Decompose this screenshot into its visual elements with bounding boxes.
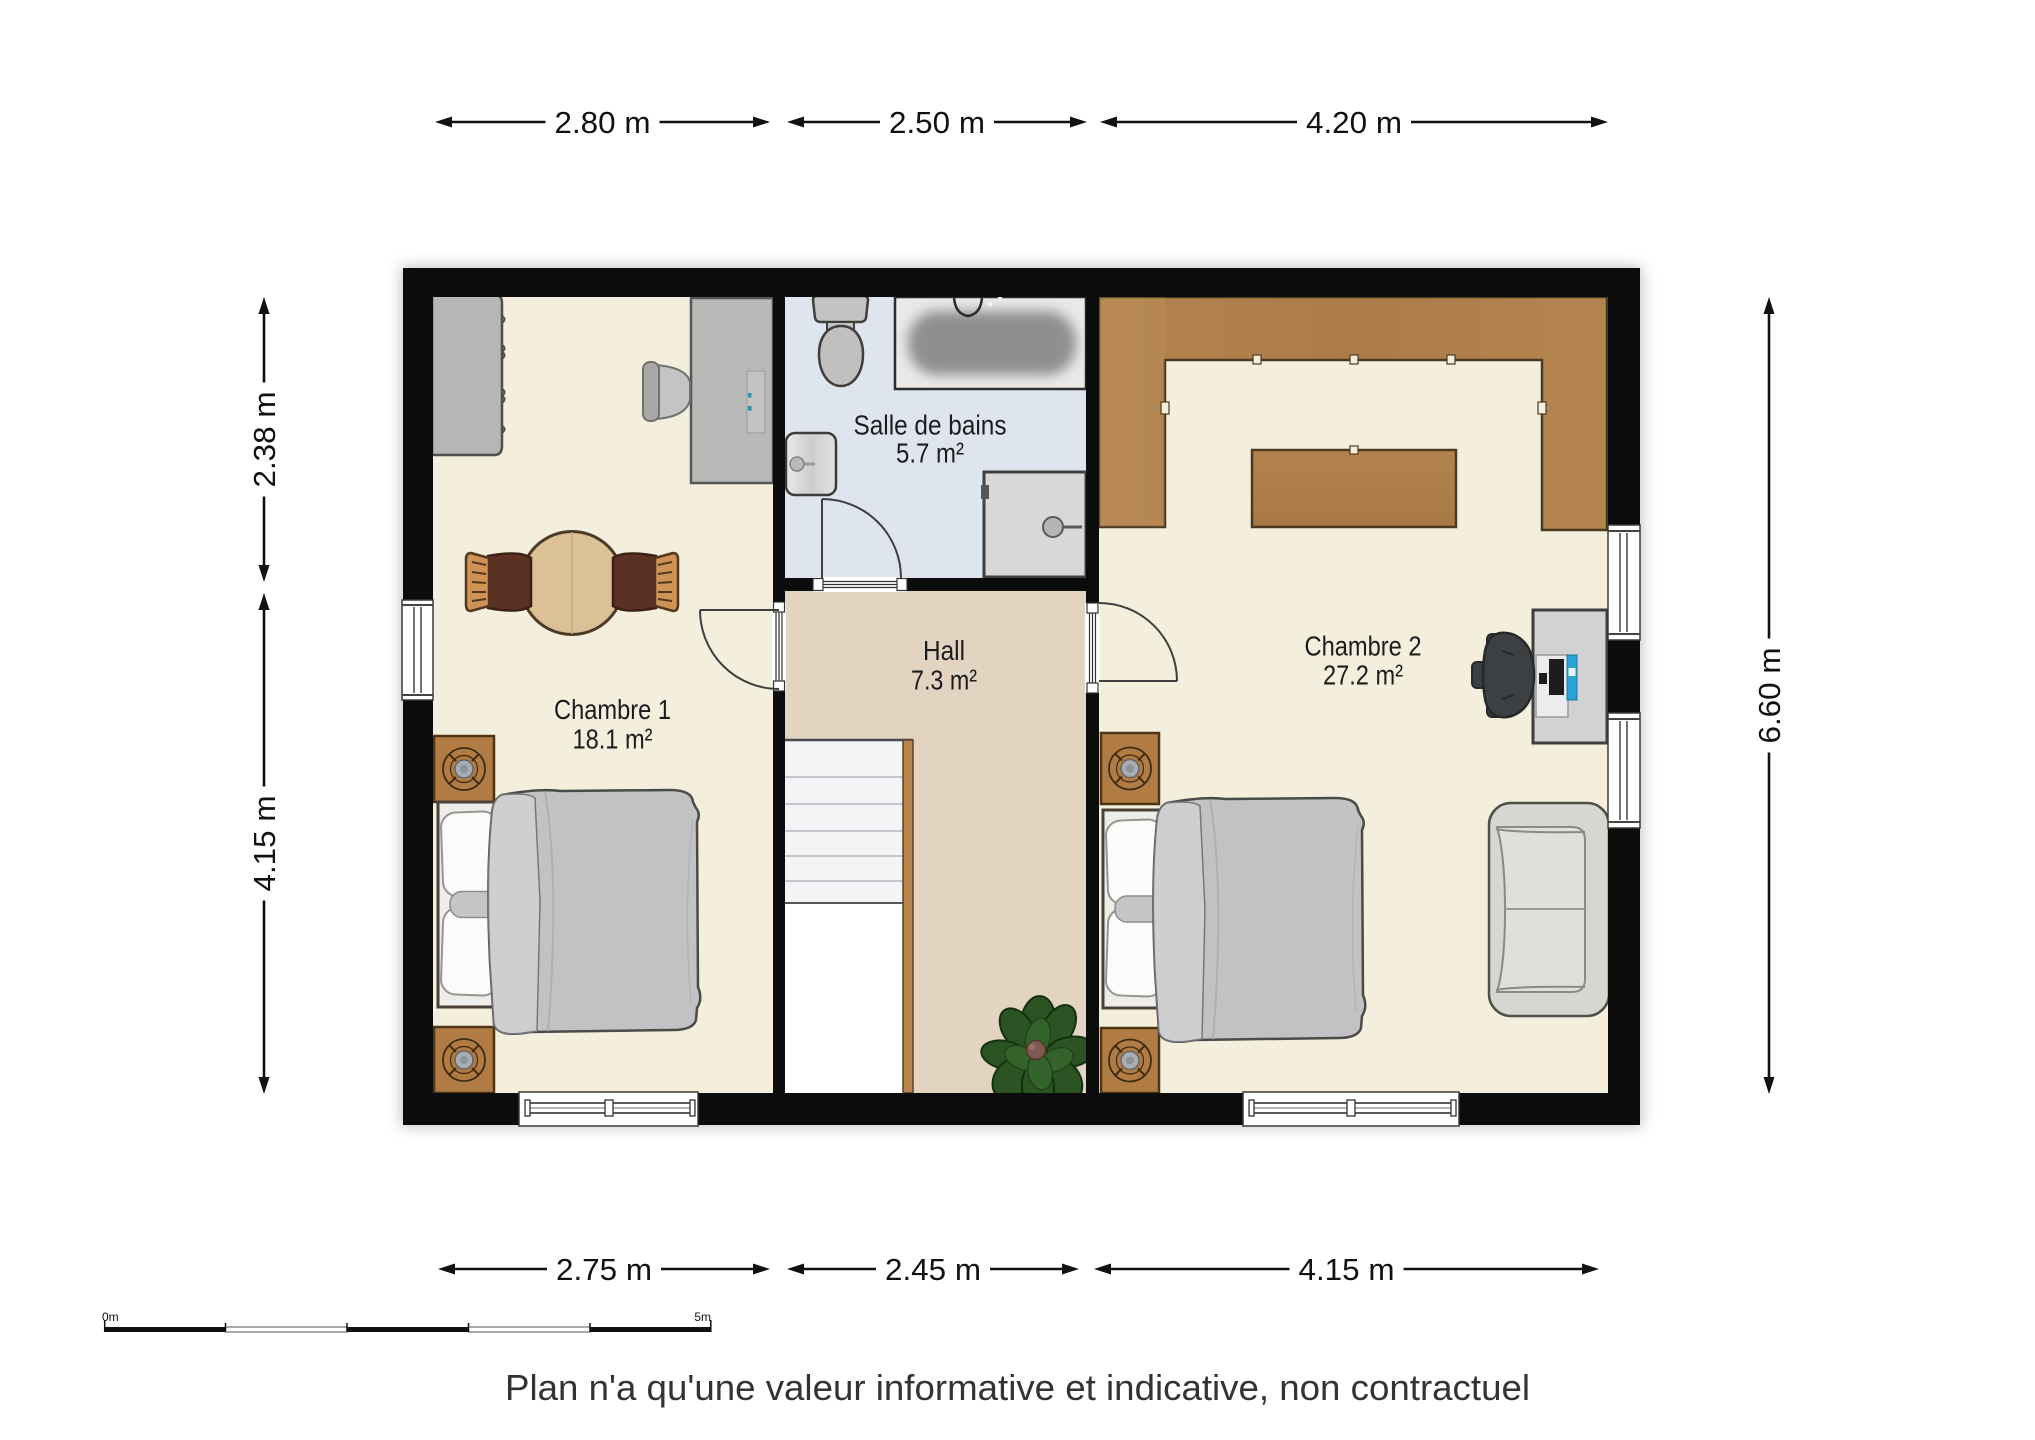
svg-text:2.50 m: 2.50 m bbox=[889, 105, 985, 140]
svg-text:5m: 5m bbox=[694, 1310, 711, 1324]
svg-text:2.38 m: 2.38 m bbox=[247, 392, 282, 488]
svg-text:7.3 m²: 7.3 m² bbox=[911, 665, 977, 696]
svg-text:2.45 m: 2.45 m bbox=[885, 1252, 981, 1287]
svg-text:4.15 m: 4.15 m bbox=[1299, 1252, 1395, 1287]
svg-text:Chambre 2: Chambre 2 bbox=[1305, 631, 1422, 662]
svg-text:Chambre 1: Chambre 1 bbox=[554, 694, 671, 725]
svg-text:2.75 m: 2.75 m bbox=[556, 1252, 652, 1287]
svg-text:4.15 m: 4.15 m bbox=[247, 796, 282, 892]
svg-text:27.2 m²: 27.2 m² bbox=[1323, 660, 1403, 691]
svg-text:5.7 m²: 5.7 m² bbox=[896, 438, 964, 469]
svg-text:2.80 m: 2.80 m bbox=[555, 105, 651, 140]
svg-text:4.20 m: 4.20 m bbox=[1306, 105, 1402, 140]
svg-text:Hall: Hall bbox=[923, 635, 965, 666]
svg-text:6.60 m: 6.60 m bbox=[1752, 648, 1787, 744]
svg-text:Plan n'a qu'une valeur informa: Plan n'a qu'une valeur informative et in… bbox=[505, 1367, 1530, 1408]
svg-text:18.1 m²: 18.1 m² bbox=[573, 724, 653, 755]
svg-text:Salle de bains: Salle de bains bbox=[854, 410, 1007, 441]
